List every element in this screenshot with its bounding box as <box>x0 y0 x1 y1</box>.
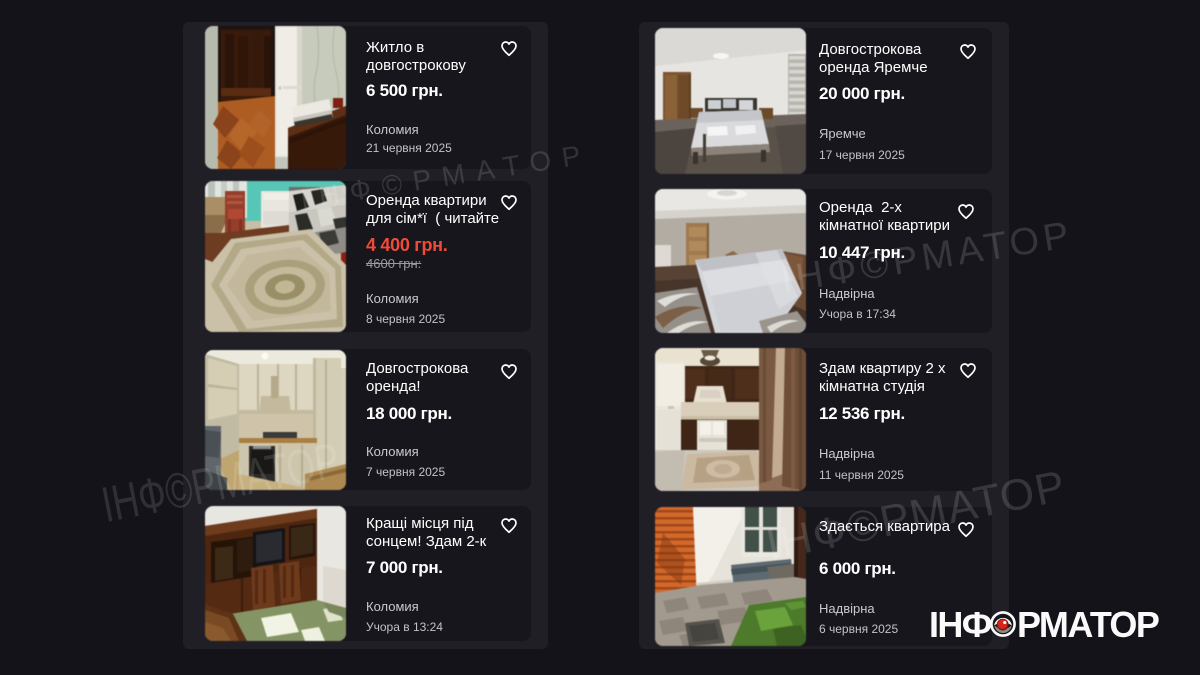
svg-text:ІНФ: ІНФ <box>929 606 992 645</box>
svg-text:РМАТОР: РМАТОР <box>1017 606 1159 645</box>
